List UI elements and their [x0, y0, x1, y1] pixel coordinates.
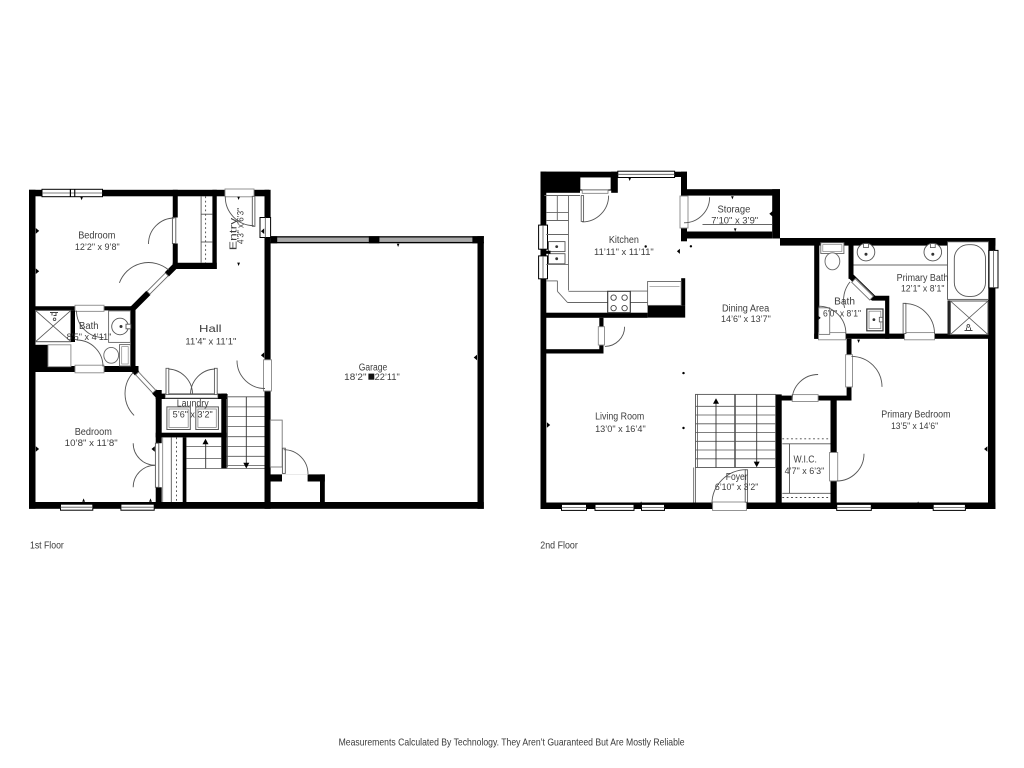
svg-text:Living Room: Living Room	[595, 412, 644, 423]
svg-text:Bedroom: Bedroom	[78, 231, 115, 242]
svg-text:12’2" x 9’8": 12’2" x 9’8"	[75, 242, 120, 252]
svg-text:18’2": 18’2"	[344, 372, 366, 382]
svg-text:8’5" x 4’11": 8’5" x 4’11"	[67, 332, 112, 342]
svg-text:6’0" x 8’1": 6’0" x 8’1"	[823, 309, 861, 319]
svg-text:4’7" x 6’3": 4’7" x 6’3"	[785, 466, 825, 476]
svg-text:6’10" x 3’2": 6’10" x 3’2"	[715, 482, 759, 492]
svg-text:22’11": 22’11"	[375, 372, 400, 382]
svg-text:Primary Bath: Primary Bath	[897, 273, 949, 284]
svg-text:Bedroom: Bedroom	[75, 427, 112, 438]
svg-text:7’10" x 3’9": 7’10" x 3’9"	[711, 215, 758, 225]
svg-text:10’8" x 11’8": 10’8" x 11’8"	[65, 438, 118, 448]
svg-text:11’4" x 11’1": 11’4" x 11’1"	[185, 336, 236, 346]
svg-text:14’6" x 13’7": 14’6" x 13’7"	[721, 314, 771, 324]
svg-text:13’5" x 14’6": 13’5" x 14’6"	[891, 421, 938, 431]
svg-text:Dining Area: Dining Area	[722, 304, 770, 315]
svg-text:13’0" x 16’4": 13’0" x 16’4"	[595, 424, 646, 434]
svg-text:4’3" x 6’3": 4’3" x 6’3"	[236, 208, 246, 244]
svg-text:Measurements Calculated By Tec: Measurements Calculated By Technology. T…	[339, 737, 685, 748]
svg-text:Laundry: Laundry	[177, 399, 209, 410]
svg-text:12’1" x 8’1": 12’1" x 8’1"	[901, 284, 945, 294]
svg-text:Bath: Bath	[834, 297, 855, 308]
svg-text:2nd Floor: 2nd Floor	[540, 541, 578, 552]
svg-text:11’11" x 11’11": 11’11" x 11’11"	[594, 247, 654, 257]
svg-text:Primary Bedroom: Primary Bedroom	[881, 410, 950, 421]
svg-text:1st Floor: 1st Floor	[30, 541, 64, 552]
svg-text:Kitchen: Kitchen	[609, 235, 639, 246]
svg-text:Hall: Hall	[199, 324, 222, 335]
svg-text:W.I.C.: W.I.C.	[793, 455, 817, 466]
svg-text:Bath: Bath	[79, 321, 99, 332]
svg-text:Storage: Storage	[718, 205, 751, 216]
svg-text:5’6" x 3’2": 5’6" x 3’2"	[173, 409, 213, 419]
